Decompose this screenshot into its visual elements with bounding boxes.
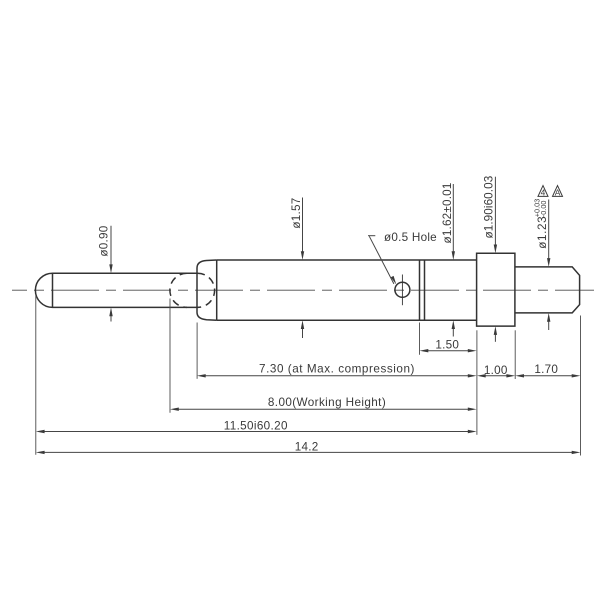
svg-text:ø1.23: ø1.23 — [536, 216, 549, 249]
svg-text:-0.00: -0.00 — [539, 201, 548, 218]
svg-text:ø1.90i60.03: ø1.90i60.03 — [483, 176, 496, 239]
svg-text:A: A — [555, 188, 561, 198]
svg-text:ø1.57: ø1.57 — [290, 197, 303, 228]
svg-text:7.30 (at Max. compression): 7.30 (at Max. compression) — [259, 362, 415, 375]
svg-text:ø1.62±0.01: ø1.62±0.01 — [441, 182, 454, 243]
svg-text:14.2: 14.2 — [295, 440, 319, 453]
svg-text:ø0.90: ø0.90 — [98, 225, 111, 256]
svg-text:8.00(Working Height): 8.00(Working Height) — [268, 396, 386, 409]
svg-text:4: 4 — [541, 188, 546, 198]
svg-text:1.00: 1.00 — [484, 364, 508, 377]
svg-text:ø0.5 Hole: ø0.5 Hole — [384, 231, 437, 244]
svg-text:11.50i60.20: 11.50i60.20 — [224, 419, 288, 432]
svg-text:1.70: 1.70 — [534, 363, 558, 376]
svg-text:1.50: 1.50 — [435, 339, 459, 352]
